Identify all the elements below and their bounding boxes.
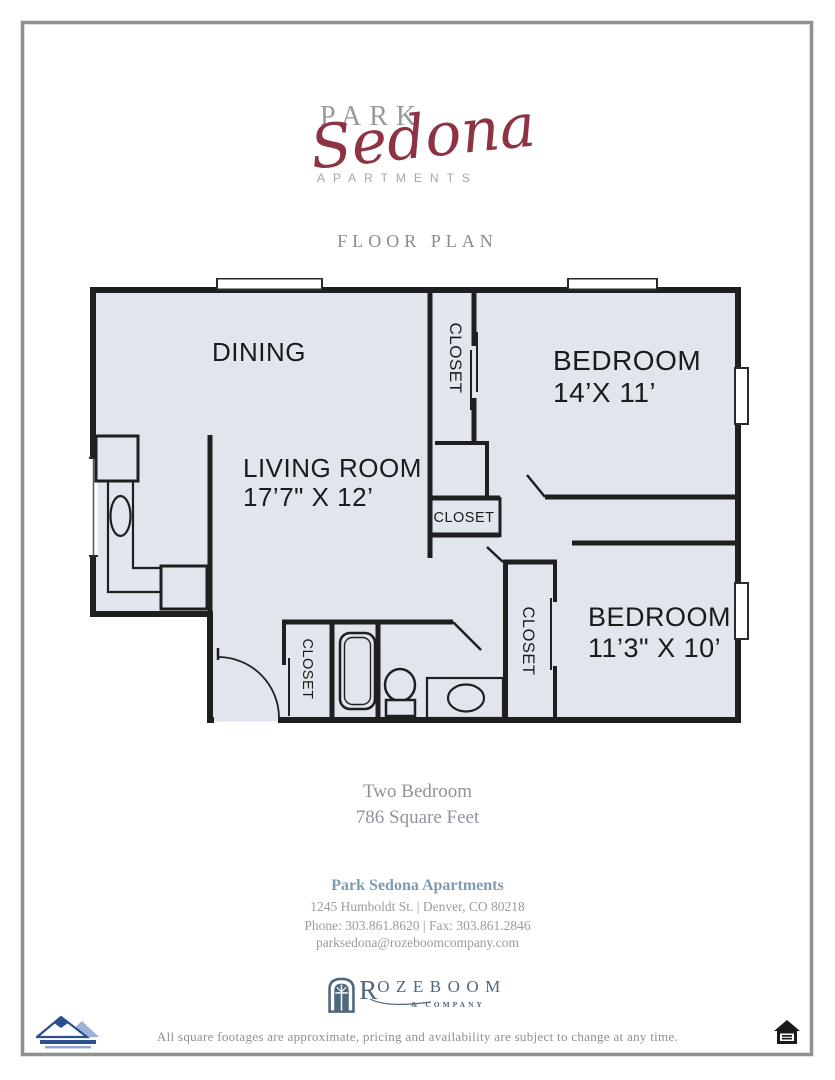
label-bedroom2: BEDROOM	[588, 602, 731, 632]
toilet-tank	[386, 700, 415, 716]
refrigerator	[96, 436, 138, 481]
rozeboom-wordmark: ROZEBOOM & COMPANY	[359, 977, 507, 1004]
label-closet-1: CLOSET	[446, 322, 465, 393]
label-living-room-dims: 17’7" X 12’	[243, 482, 373, 512]
contact-email: parksedona@rozeboomcompany.com	[0, 934, 835, 951]
label-closet-entry: CLOSET	[299, 638, 315, 699]
label-bedroom2-dims: 11’3" X 10’	[588, 633, 721, 663]
label-bedroom1-dims: 14’X 11’	[553, 377, 656, 408]
entry-opening	[214, 715, 278, 726]
rozeboom-rest: OZEBOOM	[377, 977, 507, 996]
label-closet-2: CLOSET	[519, 606, 537, 675]
flyer-page: PARK Sedona APARTMENTS FLOOR PLAN	[0, 0, 835, 1080]
rozeboom-logo: ROZEBOOM & COMPANY	[0, 977, 835, 1013]
page-title: FLOOR PLAN	[0, 231, 835, 252]
stove	[161, 566, 207, 609]
arched-door-icon	[328, 977, 355, 1013]
window-right-bedroom1	[735, 368, 748, 424]
brand-apartments: APARTMENTS	[317, 171, 478, 185]
label-bedroom1: BEDROOM	[553, 345, 701, 376]
contact-block: Park Sedona Apartments 1245 Humboldt St.…	[0, 877, 835, 951]
rozeboom-tagline: & COMPANY	[411, 1000, 485, 1009]
toilet-bowl	[385, 669, 415, 701]
label-dining: DINING	[212, 337, 306, 367]
unit-area: 786 Square Feet	[0, 805, 835, 831]
contact-name: Park Sedona Apartments	[0, 877, 835, 895]
label-living-room: LIVING ROOM	[243, 453, 422, 483]
contact-address: 1245 Humboldt St. | Denver, CO 80218	[0, 898, 835, 915]
unit-type: Two Bedroom	[0, 779, 835, 805]
unit-summary: Two Bedroom 786 Square Feet	[0, 779, 835, 831]
disclaimer-text: All square footages are approximate, pri…	[0, 1029, 835, 1045]
floor-plan-diagram: DINING LIVING ROOM 17’7" X 12’ BEDROOM 1…	[85, 278, 750, 730]
window-top-right	[568, 279, 657, 290]
label-closet-hall: CLOSET	[433, 510, 494, 526]
window-right-bedroom2	[735, 583, 748, 639]
equal-housing-icon	[772, 1018, 802, 1048]
window-top-left	[217, 279, 322, 290]
contact-phone-fax: Phone: 303.861.8620 | Fax: 303.861.2846	[0, 917, 835, 934]
